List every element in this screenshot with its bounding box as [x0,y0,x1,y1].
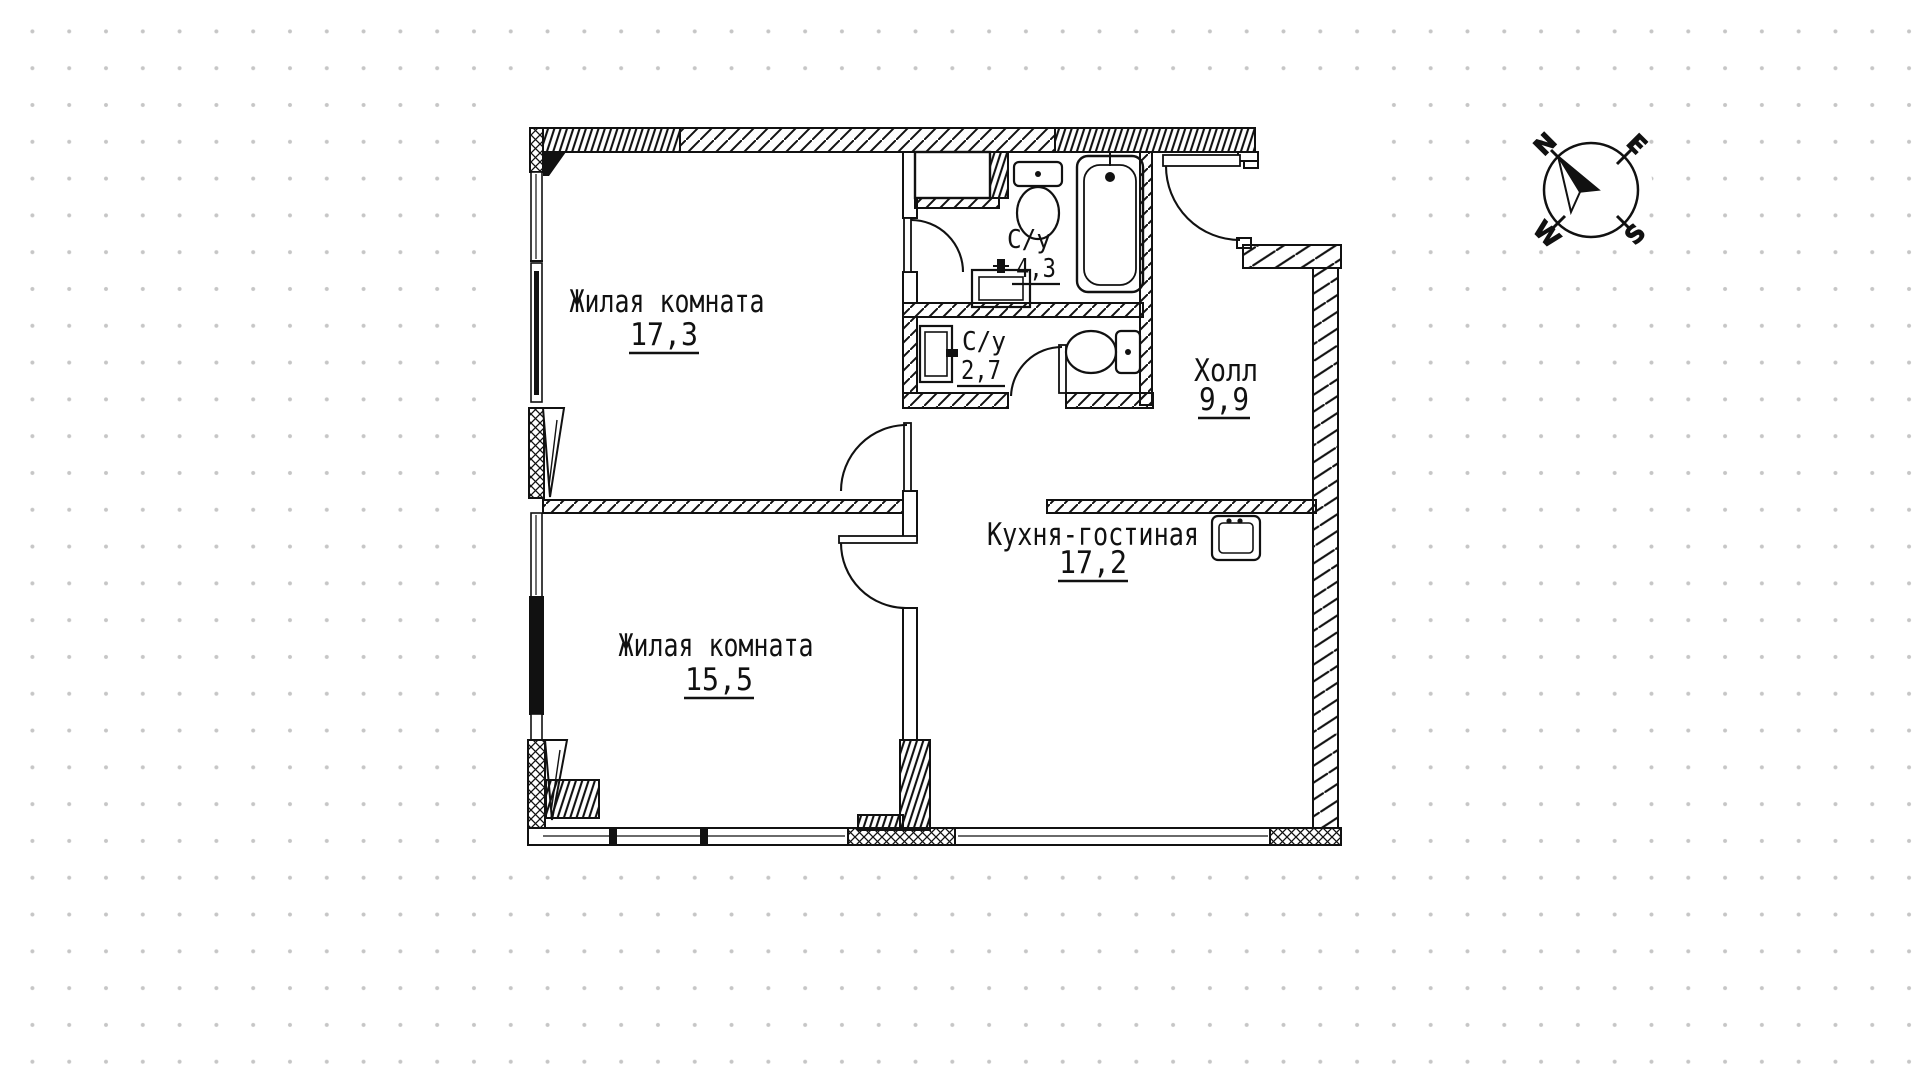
wall-segment [903,393,1008,408]
wall-end-cap [1244,161,1258,168]
wall-segment [1243,245,1341,268]
wall-pier [900,740,930,830]
wall-pier [546,780,599,818]
room-area: 9,9 [1199,382,1249,418]
room-label: Жилая комната [619,628,814,664]
wall-pier [530,128,543,172]
wall-segment [903,491,917,540]
room-area: 4,3 [1016,254,1056,284]
room-label: С/у [962,327,1006,357]
wall-segment [543,128,680,152]
room-area: 17,2 [1059,545,1127,581]
wall-segment [1055,128,1255,152]
wall-segment [903,608,917,740]
wall-pier [1270,828,1341,845]
wall-segment [1313,268,1338,828]
wall-segment [543,500,903,513]
room-label: Жилая комната [570,284,765,320]
wall-segment [680,128,1055,152]
wall-pier [529,408,544,498]
room-label: С/у [1007,225,1051,255]
window [531,714,542,740]
drawing-canvas: Жилая комната 17,3 Жилая комната 15,5 Ку… [0,0,1920,1078]
window-sash [534,271,539,395]
door-leaf [839,536,917,543]
wall-segment [1047,500,1316,513]
door-leaf [904,423,911,491]
entry-door-leaf [1163,155,1240,166]
wall-segment [915,198,999,208]
wall-pier [858,815,903,830]
window-mullion [610,828,616,845]
room-area: 2,7 [961,356,1001,386]
ventilation-shaft [915,152,990,198]
room-area: 15,5 [685,662,753,698]
room-area: 17,3 [630,317,698,353]
wall-segment [530,597,543,714]
floor-plan-drawing: Жилая комната 17,3 Жилая комната 15,5 Ку… [0,0,1920,1078]
wall-segment [903,317,917,393]
duct [990,152,1008,198]
window-mullion [701,828,707,845]
wall-segment [903,303,1143,317]
wall-segment [903,272,917,303]
wall-end-cap [1238,152,1258,161]
door-leaf [904,218,911,272]
